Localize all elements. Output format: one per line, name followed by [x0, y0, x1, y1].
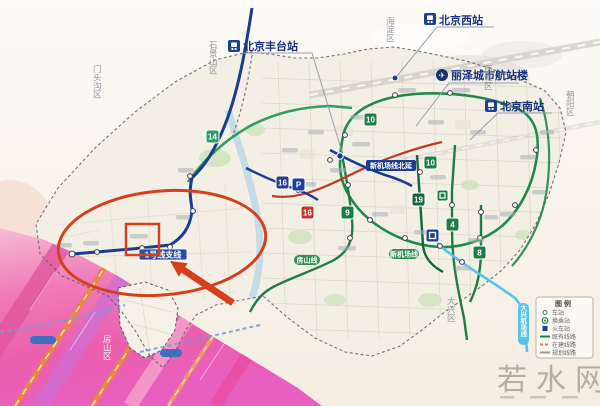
- badge-line-16-blue: 16: [276, 176, 289, 189]
- watermark-text: 若水网: [497, 364, 600, 397]
- badge-line-9: 9: [341, 206, 354, 219]
- legend-item: 在建线路: [552, 341, 576, 349]
- svg-text:16: 16: [303, 209, 312, 218]
- airport-north-ext-label: 新机场线北延: [370, 161, 413, 170]
- badge-line-8: 8: [473, 246, 486, 259]
- district-mentougou: 门头沟区: [93, 64, 102, 100]
- svg-text:8: 8: [477, 249, 482, 258]
- district-chaoyang: 朝阳区: [566, 90, 575, 117]
- svg-text:14: 14: [208, 133, 217, 142]
- railway-station-icon: [485, 100, 497, 112]
- svg-text:✈: ✈: [439, 71, 446, 80]
- svg-text:10: 10: [366, 116, 375, 125]
- legend: 图例 车站 换乘站 火车站 既有线路 在建线路 规划线路: [536, 297, 593, 358]
- svg-text:4: 4: [450, 221, 455, 230]
- fengtai-station-label: 北京丰台站: [243, 39, 298, 53]
- district-daxing: 大兴区: [447, 296, 456, 323]
- legend-rail-symbol: [543, 326, 548, 331]
- district-xicheng: 西城区: [484, 64, 493, 91]
- legend-item: 换乘站: [552, 317, 570, 325]
- district-fangshan: 房山区: [103, 334, 112, 361]
- daxing-airport-line-label: 大兴机场线: [521, 303, 528, 338]
- beijing-metro-map: 14 16 P 16 9 10 10 19 4 8 新机场线北延 房山线 新机场…: [0, 0, 600, 406]
- badge-line-10-a: 10: [364, 113, 377, 126]
- beijing-west-station-label: 北京西站: [439, 13, 483, 27]
- railway-station-icon: [424, 13, 436, 25]
- badge-line-10-b: 10: [424, 156, 437, 169]
- badge-parking: P: [292, 178, 305, 191]
- legend-station-symbol: [543, 311, 547, 315]
- legend-item: 既有线路: [552, 333, 576, 341]
- watermark: 若水网: [497, 364, 600, 399]
- legend-item: 规划线路: [552, 349, 576, 357]
- svg-text:9: 9: [345, 209, 350, 218]
- road-label-capsule: [30, 336, 56, 344]
- airport-terminal-icon: ✈: [436, 69, 448, 81]
- railway-station-icon: [228, 40, 240, 52]
- fengtai-station-dot: [337, 153, 343, 159]
- district-haidian: 海淀区: [386, 16, 395, 43]
- road-label-capsule: [160, 349, 182, 357]
- screenshot-root: 14 16 P 16 9 10 10 19 4 8 新机场线北延 房山线 新机场…: [0, 0, 600, 406]
- legend-item: 火车站: [552, 325, 570, 333]
- district-shijingshan: 石景山区: [209, 40, 218, 76]
- airport-line-logo-badge: [426, 229, 439, 242]
- legend-title: 图例: [555, 299, 573, 308]
- metro-logo-badge: [437, 190, 448, 201]
- new-airport-line-label: 新机场线: [390, 250, 418, 259]
- legend-item: 车站: [552, 309, 564, 317]
- fangshan-line-label: 房山线: [297, 256, 318, 265]
- svg-text:P: P: [296, 181, 302, 190]
- svg-text:10: 10: [426, 159, 435, 168]
- beijing-south-station-label: 北京南站: [500, 99, 544, 113]
- svg-text:16: 16: [278, 179, 287, 188]
- badge-line-16-red: 16: [301, 206, 314, 219]
- badge-line-14: 14: [206, 130, 219, 143]
- badge-line-4: 4: [446, 218, 459, 231]
- svg-text:19: 19: [414, 196, 423, 205]
- badge-line-19: 19: [412, 193, 425, 206]
